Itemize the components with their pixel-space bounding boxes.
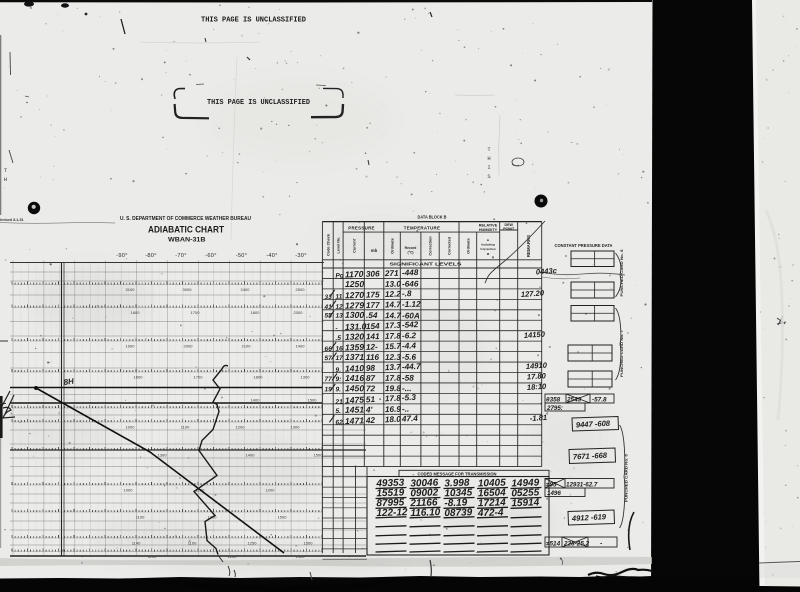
svg-text:1200: 1200 bbox=[266, 488, 276, 493]
svg-text:116: 116 bbox=[366, 353, 380, 362]
svg-text:1900: 1900 bbox=[126, 344, 136, 349]
svg-text:17.80: 17.80 bbox=[527, 371, 547, 381]
svg-text:-70°: -70° bbox=[175, 253, 187, 259]
svg-text:Level No.: Level No. bbox=[337, 237, 341, 254]
svg-text:1300: 1300 bbox=[158, 453, 168, 458]
svg-text:18.0: 18.0 bbox=[385, 415, 402, 425]
svg-text:15.7: 15.7 bbox=[385, 342, 402, 352]
svg-text:CODED MESSAGE FOR TRANSMISSION: CODED MESSAGE FOR TRANSMISSION bbox=[418, 472, 497, 478]
svg-text:DATA BLOCK B: DATA BLOCK B bbox=[418, 215, 447, 221]
svg-text:Record: Record bbox=[405, 246, 417, 250]
svg-text:1800: 1800 bbox=[254, 375, 264, 380]
svg-text:131.0: 131.0 bbox=[345, 321, 367, 332]
svg-text:9.: 9. bbox=[335, 386, 341, 393]
svg-text:Ordinate: Ordinate bbox=[467, 238, 471, 254]
svg-text:1300: 1300 bbox=[301, 375, 311, 380]
svg-text:1700: 1700 bbox=[191, 310, 201, 315]
svg-text:ADIABATIC CHART: ADIABATIC CHART bbox=[148, 225, 224, 236]
svg-text:mb: mb bbox=[371, 248, 378, 253]
svg-text:13.7: 13.7 bbox=[385, 363, 402, 373]
svg-text:-90°: -90° bbox=[116, 253, 128, 259]
svg-text:1500: 1500 bbox=[304, 541, 314, 546]
svg-text:87: 87 bbox=[366, 374, 376, 383]
svg-text:1359: 1359 bbox=[345, 342, 365, 353]
svg-text:175: 175 bbox=[366, 290, 380, 299]
svg-text:62.: 62. bbox=[335, 419, 345, 426]
svg-text:-6.2: -6.2 bbox=[402, 331, 417, 340]
svg-text:-58: -58 bbox=[402, 374, 414, 383]
svg-text:154: 154 bbox=[366, 322, 380, 332]
svg-text:1371: 1371 bbox=[345, 352, 364, 362]
svg-text:08739: 08739 bbox=[444, 507, 473, 519]
svg-text:66: 66 bbox=[324, 346, 332, 353]
svg-text:-1.81: -1.81 bbox=[530, 413, 548, 423]
svg-text:1300: 1300 bbox=[296, 554, 306, 559]
svg-text:1451: 1451 bbox=[345, 405, 365, 415]
svg-text:15914: 15914 bbox=[511, 497, 540, 509]
svg-text:-...: -... bbox=[402, 384, 412, 393]
svg-text:1140: 1140 bbox=[132, 541, 141, 546]
svg-text:Current: Current bbox=[353, 238, 357, 252]
svg-text:8H: 8H bbox=[63, 377, 75, 387]
svg-text:14.7: 14.7 bbox=[385, 311, 401, 320]
svg-text:1200: 1200 bbox=[228, 554, 238, 559]
svg-text:14150: 14150 bbox=[524, 329, 546, 340]
svg-text:THIS PAGE IS UNCLASSIFIED: THIS PAGE IS UNCLASSIFIED bbox=[207, 99, 311, 107]
svg-text:77: 77 bbox=[324, 376, 332, 383]
svg-text:1800: 1800 bbox=[251, 310, 261, 315]
svg-text:1250: 1250 bbox=[345, 279, 364, 289]
svg-text:177: 177 bbox=[366, 301, 380, 310]
svg-text:CONSTANT PRESSURE DATA: CONSTANT PRESSURE DATA bbox=[555, 243, 613, 248]
svg-text:0443c: 0443c bbox=[536, 266, 558, 277]
svg-text:-5.6: -5.6 bbox=[402, 353, 417, 362]
svg-text:1496: 1496 bbox=[547, 490, 561, 497]
svg-text:PUNCHED CARD No. 7: PUNCHED CARD No. 7 bbox=[620, 330, 624, 377]
svg-text:-542: -542 bbox=[402, 320, 419, 330]
svg-text:-30°: -30° bbox=[295, 253, 307, 259]
svg-text:PRESSURE: PRESSURE bbox=[348, 226, 375, 231]
svg-text:1100: 1100 bbox=[148, 554, 157, 559]
svg-text:1500: 1500 bbox=[308, 398, 318, 403]
svg-text:≠95: ≠95 bbox=[546, 482, 557, 489]
svg-text:Ordinate: Ordinate bbox=[391, 238, 395, 254]
svg-text:-1.12: -1.12 bbox=[402, 300, 421, 309]
svg-text:12-: 12- bbox=[366, 342, 378, 351]
svg-text:12.2: 12.2 bbox=[385, 289, 402, 299]
svg-text:.54: .54 bbox=[366, 311, 378, 320]
svg-text:1170: 1170 bbox=[345, 269, 364, 280]
svg-text:-.8: -.8 bbox=[402, 289, 412, 298]
svg-text:POINT: POINT bbox=[503, 227, 515, 231]
svg-text:9:: 9: bbox=[335, 376, 341, 383]
svg-text:≠514: ≠514 bbox=[546, 541, 561, 548]
svg-text:H: H bbox=[487, 155, 490, 162]
svg-text:1000: 1000 bbox=[124, 488, 134, 493]
svg-text:SIGNIFICANT LEVELS: SIGNIFICANT LEVELS bbox=[390, 262, 462, 267]
svg-text:12.3: 12.3 bbox=[385, 353, 401, 362]
svg-text:228-25.2: 228-25.2 bbox=[563, 541, 590, 548]
svg-text:141: 141 bbox=[366, 332, 380, 341]
svg-text:16: 16 bbox=[335, 346, 343, 353]
svg-text:Corrected: Corrected bbox=[448, 236, 452, 255]
svg-text:21: 21 bbox=[334, 399, 343, 406]
svg-text:θ358: θ358 bbox=[546, 397, 561, 404]
svg-text:1500: 1500 bbox=[314, 453, 324, 458]
svg-text:-646: -646 bbox=[402, 280, 419, 289]
svg-text:-40°: -40° bbox=[266, 253, 278, 259]
svg-text:Revised 8-1-51: Revised 8-1-51 bbox=[0, 218, 24, 222]
svg-text:Correction: Correction bbox=[480, 247, 495, 251]
svg-text:1320: 1320 bbox=[345, 331, 365, 341]
svg-text:17.3: 17.3 bbox=[385, 321, 402, 331]
svg-text:5.: 5. bbox=[335, 408, 341, 415]
svg-text:12931-62.7: 12931-62.7 bbox=[566, 482, 598, 489]
svg-text:116.10: 116.10 bbox=[410, 507, 441, 519]
svg-text:PUNCHED CARD No. 8: PUNCHED CARD No. 8 bbox=[620, 249, 624, 296]
svg-text:14.7: 14.7 bbox=[385, 300, 402, 309]
svg-text:2000: 2000 bbox=[294, 310, 304, 315]
svg-text:11: 11 bbox=[335, 294, 342, 301]
svg-text:306: 306 bbox=[366, 269, 380, 278]
svg-text:1000: 1000 bbox=[126, 425, 136, 430]
svg-text:271: 271 bbox=[384, 269, 399, 278]
svg-text:1300: 1300 bbox=[291, 425, 301, 430]
svg-text:-50°: -50° bbox=[236, 253, 248, 259]
svg-text:17.8: 17.8 bbox=[385, 394, 402, 404]
svg-text:1200: 1200 bbox=[236, 425, 246, 430]
svg-text:1300: 1300 bbox=[345, 310, 364, 320]
svg-text:127.20: 127.20 bbox=[521, 288, 546, 299]
svg-text:13.0: 13.0 bbox=[385, 280, 401, 289]
svg-text:1450: 1450 bbox=[345, 383, 364, 393]
svg-text:42: 42 bbox=[365, 416, 376, 425]
svg-text:-60°: -60° bbox=[205, 253, 217, 259]
svg-text:7671 -668: 7671 -668 bbox=[573, 451, 608, 462]
svg-text:13: 13 bbox=[335, 313, 343, 320]
svg-text:1400: 1400 bbox=[296, 344, 306, 349]
svg-text:17.8: 17.8 bbox=[385, 331, 402, 340]
svg-text:Code Check: Code Check bbox=[327, 233, 331, 256]
svg-text:I: I bbox=[487, 164, 490, 171]
svg-text:1100: 1100 bbox=[188, 541, 197, 546]
svg-text:HUMIDITY: HUMIDITY bbox=[479, 228, 498, 232]
svg-text:1100: 1100 bbox=[181, 425, 190, 430]
svg-text:TEMPERATURE: TEMPERATURE bbox=[404, 226, 440, 231]
svg-text:-4.4: -4.4 bbox=[402, 341, 417, 350]
svg-text:-..: -.. bbox=[402, 405, 409, 414]
svg-text:1471: 1471 bbox=[345, 415, 365, 426]
svg-text:H: H bbox=[4, 176, 7, 183]
svg-text:16.9: 16.9 bbox=[385, 405, 402, 414]
svg-text:1400: 1400 bbox=[246, 453, 256, 458]
svg-text:-57.8: -57.8 bbox=[592, 397, 607, 404]
svg-text:2000: 2000 bbox=[184, 344, 194, 349]
svg-text:51: 51 bbox=[366, 395, 376, 404]
svg-text:472-4: 472-4 bbox=[477, 507, 504, 519]
svg-text:17.8: 17.8 bbox=[385, 374, 401, 383]
svg-text:2500: 2500 bbox=[296, 287, 306, 292]
svg-text:17: 17 bbox=[335, 355, 343, 362]
svg-text:1500: 1500 bbox=[278, 515, 288, 520]
svg-text:19.8: 19.8 bbox=[385, 384, 401, 393]
svg-text:72: 72 bbox=[366, 384, 376, 393]
svg-text:2400: 2400 bbox=[241, 287, 251, 292]
svg-text:9.: 9. bbox=[335, 367, 341, 374]
svg-text:55: 55 bbox=[324, 313, 332, 320]
svg-text:98: 98 bbox=[366, 364, 376, 373]
svg-text:PUNCHED CARD No. 6: PUNCHED CARD No. 6 bbox=[625, 454, 629, 502]
svg-text:RELATIVE: RELATIVE bbox=[479, 223, 498, 227]
svg-text:3100: 3100 bbox=[126, 287, 136, 292]
svg-text:1250: 1250 bbox=[248, 541, 258, 546]
svg-text:47.4: 47.4 bbox=[401, 414, 419, 424]
svg-text:3000: 3000 bbox=[183, 287, 193, 292]
svg-text:.5: .5 bbox=[335, 335, 341, 342]
svg-text:1100: 1100 bbox=[136, 515, 145, 520]
svg-text:18:10: 18:10 bbox=[527, 382, 548, 392]
svg-text:41: 41 bbox=[323, 304, 332, 311]
svg-text:57: 57 bbox=[324, 355, 332, 362]
svg-text:4': 4' bbox=[365, 405, 374, 414]
svg-text:Including: Including bbox=[481, 243, 494, 247]
svg-text:14910: 14910 bbox=[526, 360, 548, 371]
svg-text:4912 -619: 4912 -619 bbox=[571, 512, 607, 523]
svg-text:2795:: 2795: bbox=[546, 405, 563, 412]
svg-text:Correction: Correction bbox=[429, 236, 433, 256]
svg-text:122-12: 122-12 bbox=[376, 507, 408, 519]
svg-text:9447 -608: 9447 -608 bbox=[576, 419, 611, 430]
svg-text:1700: 1700 bbox=[194, 375, 204, 380]
svg-text:1600: 1600 bbox=[134, 375, 144, 380]
svg-text:-448: -448 bbox=[402, 268, 419, 278]
svg-text:2549: 2549 bbox=[566, 397, 582, 404]
svg-text:-5.3: -5.3 bbox=[402, 393, 417, 403]
svg-text:-44.7: -44.7 bbox=[402, 362, 421, 372]
svg-text:WBAN-31B: WBAN-31B bbox=[168, 237, 206, 244]
svg-text:1270: 1270 bbox=[345, 290, 365, 301]
svg-text:1600: 1600 bbox=[131, 310, 141, 315]
svg-text:1416: 1416 bbox=[345, 373, 364, 383]
svg-text:12: 12 bbox=[335, 304, 343, 311]
svg-text:1400: 1400 bbox=[251, 398, 261, 403]
svg-text:(°C): (°C) bbox=[407, 251, 413, 255]
svg-text:THIS PAGE IS UNCLASSIFIED: THIS PAGE IS UNCLASSIFIED bbox=[201, 17, 307, 25]
svg-text:2100: 2100 bbox=[242, 344, 252, 349]
svg-text:-: - bbox=[335, 325, 337, 332]
svg-text:Pg: Pg bbox=[335, 272, 344, 279]
svg-text:-80°: -80° bbox=[145, 253, 157, 259]
